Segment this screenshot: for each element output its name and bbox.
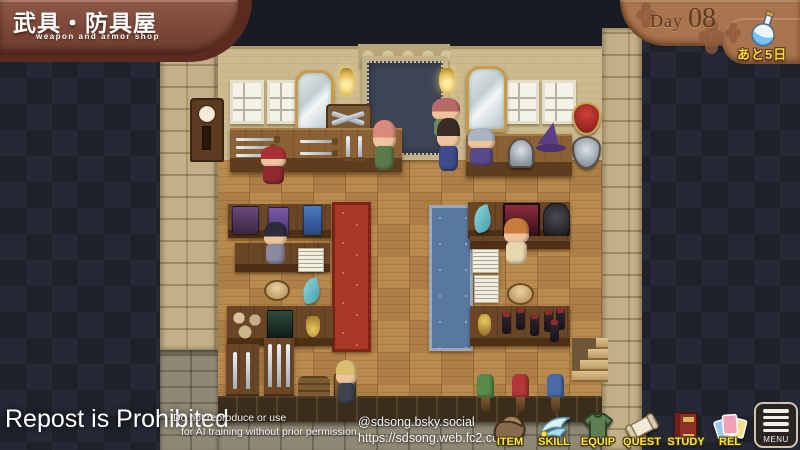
notice-line1: Do not reproduce or use: [173, 412, 360, 426]
helmet-icon: [508, 138, 534, 168]
hamburger-icon: [763, 409, 789, 435]
game-screen: 武具・防具屋 weapon and armor shop Day08 あと5日 …: [0, 0, 800, 450]
ai-training-notice: Do not reproduce or use for AI training …: [173, 412, 360, 439]
open-book-icon: [474, 275, 499, 303]
game-viewport[interactable]: [160, 0, 642, 450]
window-icon: [505, 80, 539, 124]
stool-icon: [507, 283, 534, 305]
bell-icon: [478, 314, 491, 336]
papers-icon: [472, 249, 499, 273]
clover-icon: [725, 29, 733, 37]
menu-button-label: SKILL: [538, 436, 570, 448]
shop-title-english: weapon and armor shop: [36, 32, 160, 41]
menu-button-study[interactable]: STUDY: [664, 394, 708, 448]
mirror-icon: [466, 66, 507, 132]
menu-button-quest[interactable]: QUEST: [620, 394, 664, 448]
menu-button-main[interactable]: MENU: [754, 402, 798, 448]
npc-pink-hair: [373, 120, 396, 170]
stairs: [572, 338, 608, 382]
day-label: Day: [650, 11, 683, 31]
left-stone-wall: [160, 28, 218, 350]
npc-clerk-left: [264, 222, 287, 264]
menu-button-item[interactable]: ITEM: [488, 394, 532, 448]
menu-button-skill[interactable]: SKILL: [532, 394, 576, 448]
menu-button-label: EQUIP: [581, 436, 615, 448]
menu-button-label: ITEM: [497, 436, 523, 448]
shop-banner: 武具・防具屋 weapon and armor shop: [0, 0, 238, 55]
blue-carpet: [429, 205, 473, 351]
red-carpet: [332, 202, 371, 352]
npc-blue-coat-man: [437, 118, 460, 171]
clover-icon: [636, 10, 646, 20]
document-icon: [298, 248, 324, 272]
notice-line2: for AI training without prior permission…: [173, 426, 360, 440]
necklace-bust-icon: [543, 203, 570, 237]
menu-button-label: STUDY: [667, 436, 704, 448]
menu-button-label: QUEST: [623, 436, 661, 448]
armor-display-icon: [468, 128, 495, 166]
wizard-hat-icon: [536, 122, 566, 156]
wall-lamp-icon: [339, 68, 354, 96]
npc-clerk-right: [504, 218, 529, 264]
menu-button-equip[interactable]: EQUIP: [576, 394, 620, 448]
chest-icon: [232, 206, 259, 234]
day-number: 08: [688, 3, 716, 34]
npc-blonde: [336, 360, 357, 404]
blue-book-icon: [303, 205, 322, 235]
npc-red-hood: [261, 146, 286, 184]
gold-flask-icon: [306, 316, 320, 337]
menu-button-rel[interactable]: REL: [708, 394, 752, 448]
countdown-badge: あと5日: [737, 44, 787, 63]
menu-button-label: REL: [719, 436, 741, 448]
day-counter: Day08: [650, 3, 716, 35]
menu-button-label: MENU: [763, 435, 789, 444]
right-stone-wall: [602, 28, 642, 450]
stool-icon: [264, 280, 290, 301]
wall-lamp-icon: [439, 68, 455, 94]
menu-bar: ITEM SKILL EQUIP: [488, 392, 800, 448]
dark-tome-icon: [267, 310, 293, 339]
window-icon: [542, 80, 576, 124]
weapon-rack: [226, 344, 259, 402]
sacks-icon: [230, 308, 264, 340]
grandfather-clock-icon: [190, 98, 224, 162]
weapon-rack: [264, 338, 294, 402]
window-icon: [230, 80, 264, 124]
